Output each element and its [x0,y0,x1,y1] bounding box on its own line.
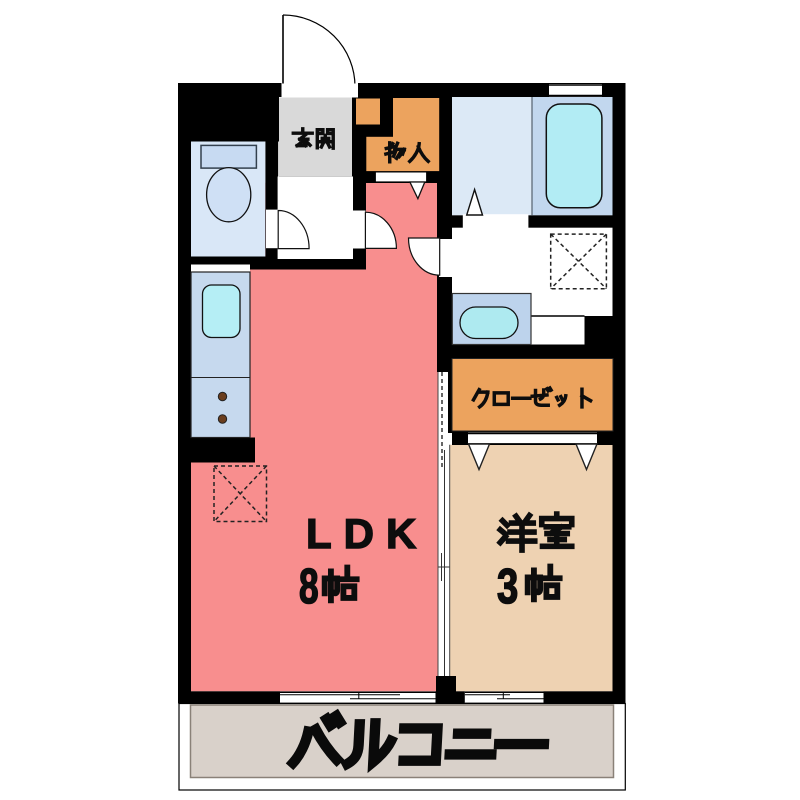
svg-text:8: 8 [299,559,319,614]
svg-text:3: 3 [497,560,518,615]
svg-text:LDK: LDK [306,510,428,557]
